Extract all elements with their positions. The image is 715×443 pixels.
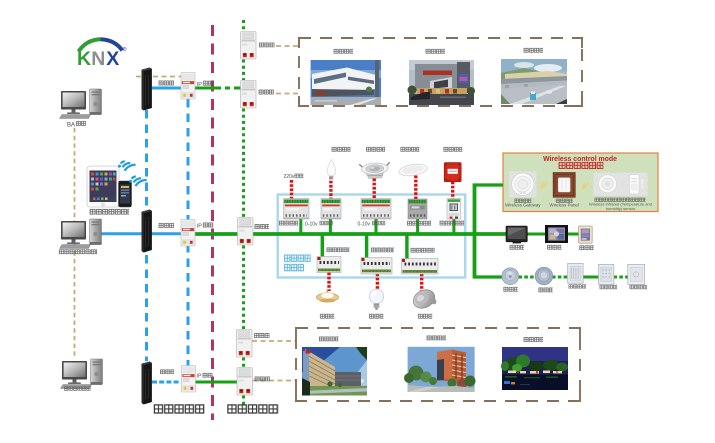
svg-text:K: K [77, 48, 91, 70]
svg-text:IP: IP [197, 82, 202, 88]
svg-text:X: X [106, 48, 119, 70]
svg-text:Wireless Panel: Wireless Panel [550, 202, 579, 207]
svg-text:0-10v: 0-10v [305, 221, 318, 227]
svg-text:humidity) sensor: humidity) sensor [606, 206, 636, 211]
svg-text:Wireless Gateway: Wireless Gateway [505, 202, 541, 207]
svg-text:®: ® [123, 46, 127, 53]
svg-text:0-10v: 0-10v [358, 221, 371, 227]
svg-text:IP: IP [197, 224, 202, 230]
svg-text:N: N [91, 48, 105, 70]
svg-text:IP: IP [197, 374, 202, 380]
svg-text:220v: 220v [284, 174, 295, 180]
svg-text:BA: BA [67, 122, 75, 128]
